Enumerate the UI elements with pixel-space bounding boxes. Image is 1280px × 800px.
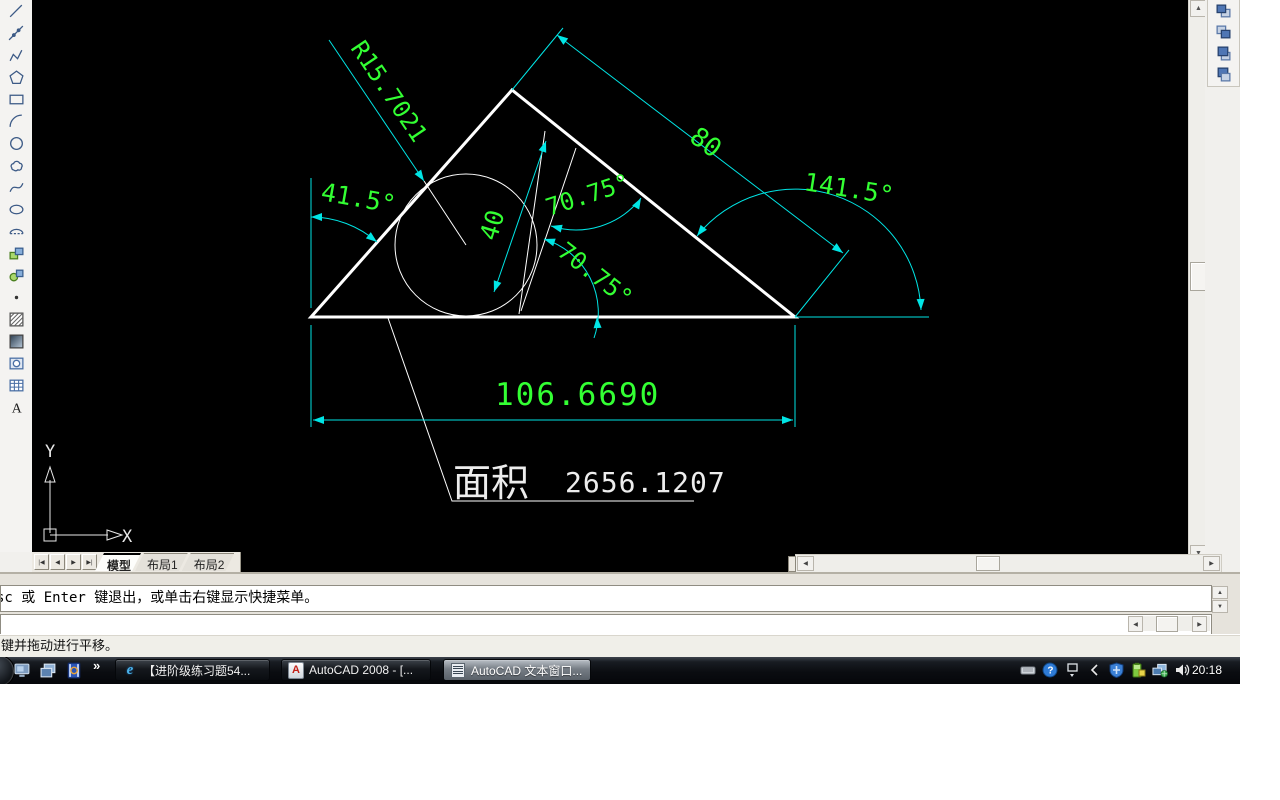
polyline-tool-button[interactable] — [4, 45, 28, 66]
region-icon — [8, 355, 25, 372]
dim-angle-right-text: 141.5° — [802, 167, 896, 210]
tab-布局1[interactable]: 布局1 — [135, 553, 188, 571]
spline-icon — [8, 179, 25, 196]
text-window-icon — [450, 662, 466, 678]
bring-above-objects-button[interactable] — [1212, 43, 1236, 63]
arc-icon — [8, 113, 25, 130]
arc-tool-button[interactable] — [4, 111, 28, 132]
area-label: 面积 — [453, 461, 529, 505]
horizontal-scroll-thumb[interactable] — [976, 556, 1000, 571]
canvas-horizontal-scrollbar[interactable]: ◀ ▶ — [795, 554, 1222, 573]
multiline-text-tool-button[interactable]: A — [4, 397, 28, 418]
send-to-back-button[interactable] — [1212, 22, 1236, 42]
radius-line — [424, 181, 466, 245]
side-dim-ext2 — [795, 250, 849, 317]
dim-angle-left-text: 41.5° — [319, 177, 398, 219]
segment-a — [519, 131, 545, 314]
dim-radius-text: R15.7021 — [345, 36, 433, 147]
area-value: 2656.1207 — [565, 466, 726, 499]
arrow — [550, 222, 563, 232]
point-icon — [8, 289, 25, 306]
polygon-tool-button[interactable] — [4, 67, 28, 88]
arrow — [490, 280, 501, 293]
side-dim-ext1 — [512, 28, 563, 90]
command-window: sc 或 Enter 键退出，或单击右键显示快捷菜单。 ▲ ▼ ◀ ▶ — [0, 572, 1240, 636]
arrow — [539, 140, 550, 153]
scroll-left-button[interactable]: ◀ — [797, 556, 814, 571]
dim-angle-upper-text: 70.75° — [542, 168, 633, 221]
taskbar-button-1[interactable]: e【进阶级练习题54... — [115, 659, 270, 681]
hatch-icon — [8, 311, 25, 328]
drawing-canvas[interactable]: 面积 2656.1207 — [32, 0, 1188, 552]
region-tool-button[interactable] — [4, 353, 28, 374]
command-history-line: sc 或 Enter 键退出，或单击右键显示快捷菜单。 — [0, 590, 318, 606]
construction-line-icon — [8, 25, 25, 42]
arrow — [313, 416, 324, 424]
arrow — [593, 317, 602, 328]
dim-angle-lower-text: 70.75° — [552, 237, 638, 312]
dim-base-text: 106.6690 — [495, 377, 660, 413]
construction-line-tool-button[interactable] — [4, 23, 28, 44]
taskbar-clock[interactable]: 20:18 — [1192, 657, 1236, 684]
dim-side-text: 80 — [684, 122, 727, 165]
bring-to-front-button[interactable] — [1212, 1, 1236, 21]
hatch-tool-button[interactable] — [4, 309, 28, 330]
rectangle-tool-button[interactable] — [4, 89, 28, 110]
polygon-icon — [8, 69, 25, 86]
canvas-vertical-scrollbar[interactable]: ▲ ▼ — [1188, 0, 1206, 561]
table-tool-button[interactable] — [4, 375, 28, 396]
command-scroll-up[interactable]: ▲ — [1212, 586, 1228, 599]
line-tool-button[interactable] — [4, 1, 28, 22]
polyline-icon — [8, 47, 25, 64]
revision-cloud-icon — [8, 157, 25, 174]
taskbar-button-label: 【进阶级练习题54... — [143, 662, 250, 679]
rectangle-icon — [8, 91, 25, 108]
svg-text:?: ? — [1047, 666, 1053, 677]
quick-launch — [13, 661, 84, 680]
autocad-window: A 面积 2656.1207 — [0, 0, 1240, 684]
status-bar: 键并拖动进行平移。 — [0, 634, 1240, 657]
circle-tool-button[interactable] — [4, 133, 28, 154]
command-scroll-down[interactable]: ▼ — [1212, 600, 1228, 613]
command-input[interactable] — [0, 614, 1212, 635]
network-icon[interactable] — [1152, 662, 1168, 678]
command-horizontal-scrollbar[interactable]: ◀ ▶ — [1128, 616, 1210, 631]
next-layout-button[interactable]: ▶ — [66, 554, 81, 570]
ellipse-icon — [8, 201, 25, 218]
gradient-icon — [8, 333, 25, 350]
ellipse-tool-button[interactable] — [4, 199, 28, 220]
arrow — [311, 213, 322, 221]
last-layout-button[interactable]: ▶| — [82, 554, 97, 570]
status-message: 键并拖动进行平移。 — [1, 638, 118, 653]
make-block-icon — [8, 267, 25, 284]
tab-模型[interactable]: 模型 — [95, 553, 141, 571]
command-scroll-right[interactable]: ▶ — [1192, 616, 1207, 632]
restore-window-icon[interactable] — [1064, 662, 1080, 678]
ucs-icon — [44, 467, 122, 541]
make-block-tool-button[interactable] — [4, 265, 28, 286]
security-shield-icon[interactable] — [1108, 662, 1124, 678]
chevron-left-icon[interactable] — [1086, 662, 1102, 678]
ucs-x-label: X — [122, 527, 133, 547]
ellipse-arc-icon — [8, 223, 25, 240]
tab-布局2[interactable]: 布局2 — [182, 553, 235, 571]
ellipse-arc-tool-button[interactable] — [4, 221, 28, 242]
spline-tool-button[interactable] — [4, 177, 28, 198]
battery-icon[interactable] — [1130, 662, 1146, 678]
line-icon — [8, 3, 25, 20]
gradient-tool-button[interactable] — [4, 331, 28, 352]
first-layout-button[interactable]: |◀ — [34, 554, 49, 570]
taskbar-button-3[interactable]: AutoCAD 文本窗口... — [443, 659, 591, 681]
table-icon — [8, 377, 25, 394]
ucs-y-label: Y — [45, 442, 55, 462]
arrow — [782, 416, 793, 424]
window-switcher-icon[interactable] — [39, 661, 58, 680]
arrow — [415, 170, 428, 184]
command-history[interactable]: sc 或 Enter 键退出，或单击右键显示快捷菜单。 — [0, 585, 1212, 612]
show-desktop-icon[interactable] — [13, 661, 32, 680]
multiline-text-icon: A — [8, 399, 25, 416]
command-scroll-left[interactable]: ◀ — [1128, 616, 1143, 632]
cad-drawing: 面积 2656.1207 — [32, 0, 1188, 552]
point-tool-button[interactable] — [4, 287, 28, 308]
insert-block-icon — [8, 245, 25, 262]
revision-cloud-tool-button[interactable] — [4, 155, 28, 176]
send-under-objects-button[interactable] — [1212, 64, 1236, 84]
help-icon[interactable]: ? — [1042, 662, 1058, 678]
layout-tab-bar: |◀◀▶▶| 模型布局1布局2 ◀ ▶ — [32, 552, 1188, 572]
svg-text:A: A — [11, 400, 21, 415]
scroll-right-button[interactable]: ▶ — [1203, 556, 1220, 571]
insert-block-tool-button[interactable] — [4, 243, 28, 264]
arrow — [632, 196, 644, 209]
media-player-icon[interactable] — [65, 661, 84, 680]
layout-tabs: 模型布局1布局2 — [101, 553, 234, 571]
pane-splitter[interactable] — [788, 556, 796, 572]
tab-nav-buttons: |◀◀▶▶| — [34, 554, 97, 570]
taskbar-button-label: AutoCAD 文本窗口... — [471, 662, 582, 679]
system-tray: ? — [1020, 660, 1190, 680]
ie-icon: e — [122, 662, 138, 678]
dim-segment-text: 40 — [474, 206, 511, 243]
keyboard-icon[interactable] — [1020, 662, 1036, 678]
draworder-toolbar — [1207, 0, 1240, 87]
arrow — [555, 32, 569, 45]
taskbar-button-2[interactable]: AAutoCAD 2008 - [... — [281, 659, 431, 681]
arrow — [832, 243, 846, 256]
previous-layout-button[interactable]: ◀ — [50, 554, 65, 570]
command-scrollbar: ▲ ▼ — [1212, 586, 1228, 610]
volume-icon[interactable] — [1174, 662, 1190, 678]
taskbar-button-label: AutoCAD 2008 - [... — [309, 663, 413, 677]
desktop: A 面积 2656.1207 — [0, 0, 1280, 800]
quicklaunch-overflow-chevron[interactable]: » — [93, 658, 100, 673]
circle-icon — [8, 135, 25, 152]
taskbar: » e【进阶级练习题54...AAutoCAD 2008 - [...AutoC… — [0, 657, 1240, 684]
autocad-icon: A — [288, 662, 304, 678]
command-hscroll-thumb[interactable] — [1156, 616, 1178, 632]
tab-controls: |◀◀▶▶| 模型布局1布局2 — [32, 552, 241, 572]
draw-toolbar: A — [0, 0, 33, 552]
arrow — [917, 299, 925, 310]
